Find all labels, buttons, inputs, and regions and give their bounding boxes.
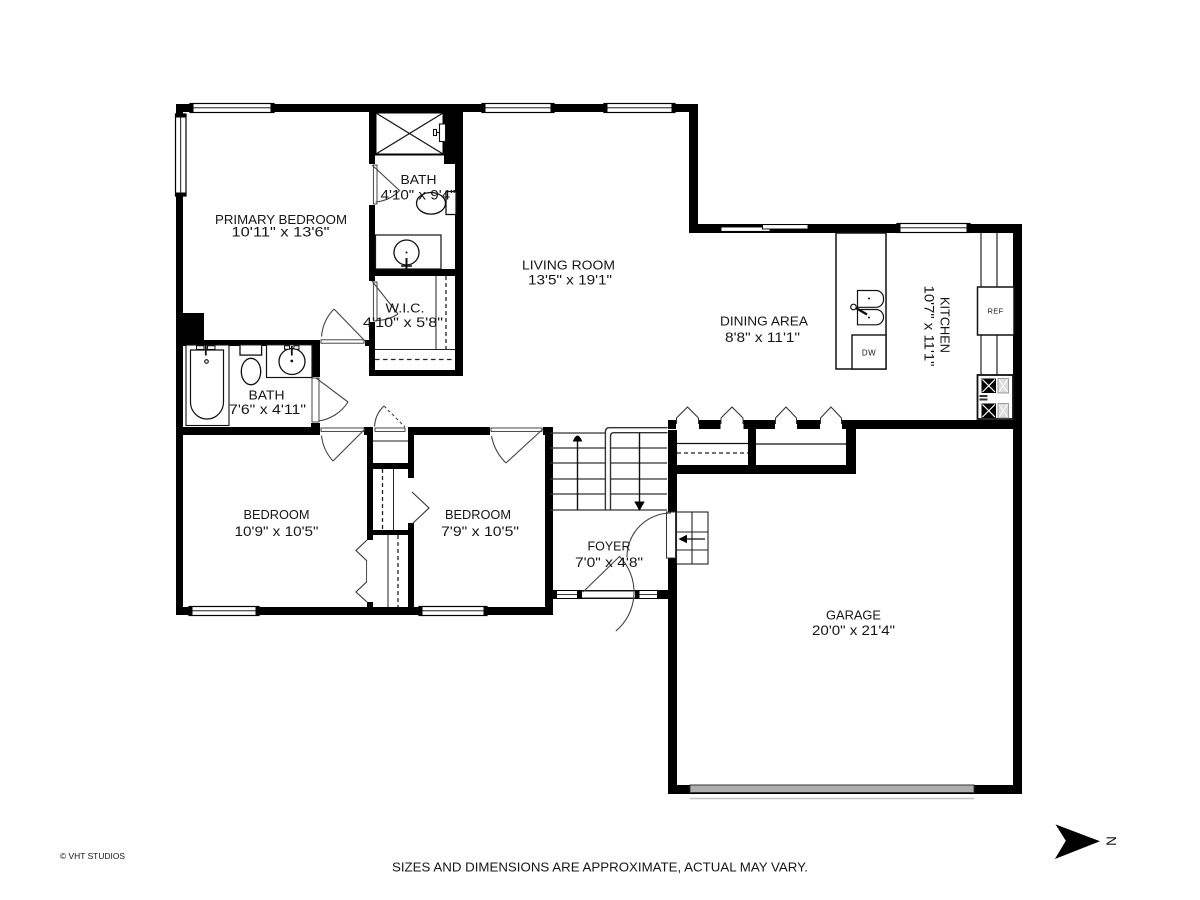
svg-text:DINING AREA: DINING AREA bbox=[720, 315, 809, 329]
svg-text:8'8" x 11'1": 8'8" x 11'1" bbox=[725, 330, 800, 345]
svg-text:GARAGE: GARAGE bbox=[826, 609, 881, 623]
svg-text:LIVING ROOM: LIVING ROOM bbox=[522, 259, 615, 273]
svg-text:© VHT STUDIOS: © VHT STUDIOS bbox=[60, 851, 125, 861]
svg-text:4'10" x 9'4": 4'10" x 9'4" bbox=[381, 188, 456, 203]
svg-text:FOYER: FOYER bbox=[588, 540, 631, 554]
svg-text:7'0" x 4'8": 7'0" x 4'8" bbox=[575, 555, 643, 570]
svg-text:BEDROOM: BEDROOM bbox=[445, 508, 511, 522]
svg-text:BEDROOM: BEDROOM bbox=[244, 508, 310, 522]
svg-text:20'0" x 21'4": 20'0" x 21'4" bbox=[812, 623, 895, 638]
svg-text:10'9" x 10'5": 10'9" x 10'5" bbox=[235, 524, 319, 539]
svg-text:10'11" x 13'6": 10'11" x 13'6" bbox=[232, 225, 330, 240]
svg-text:DW: DW bbox=[862, 349, 876, 358]
svg-text:N: N bbox=[1103, 836, 1118, 846]
svg-text:7'6" x 4'11": 7'6" x 4'11" bbox=[229, 402, 306, 417]
svg-text:SIZES AND DIMENSIONS ARE APPRO: SIZES AND DIMENSIONS ARE APPROXIMATE, AC… bbox=[392, 860, 808, 875]
svg-text:W.I.C.: W.I.C. bbox=[386, 302, 425, 316]
svg-text:BATH: BATH bbox=[249, 389, 285, 403]
svg-text:7'9" x 10'5": 7'9" x 10'5" bbox=[441, 524, 519, 539]
svg-text:4'10" x 5'8": 4'10" x 5'8" bbox=[363, 315, 443, 330]
svg-text:REF: REF bbox=[988, 307, 1004, 316]
svg-text:10'7" x 11'1": 10'7" x 11'1" bbox=[921, 286, 936, 367]
svg-text:BATH: BATH bbox=[401, 173, 437, 187]
svg-text:KITCHEN: KITCHEN bbox=[938, 297, 952, 353]
svg-text:13'5" x 19'1": 13'5" x 19'1" bbox=[528, 273, 612, 288]
